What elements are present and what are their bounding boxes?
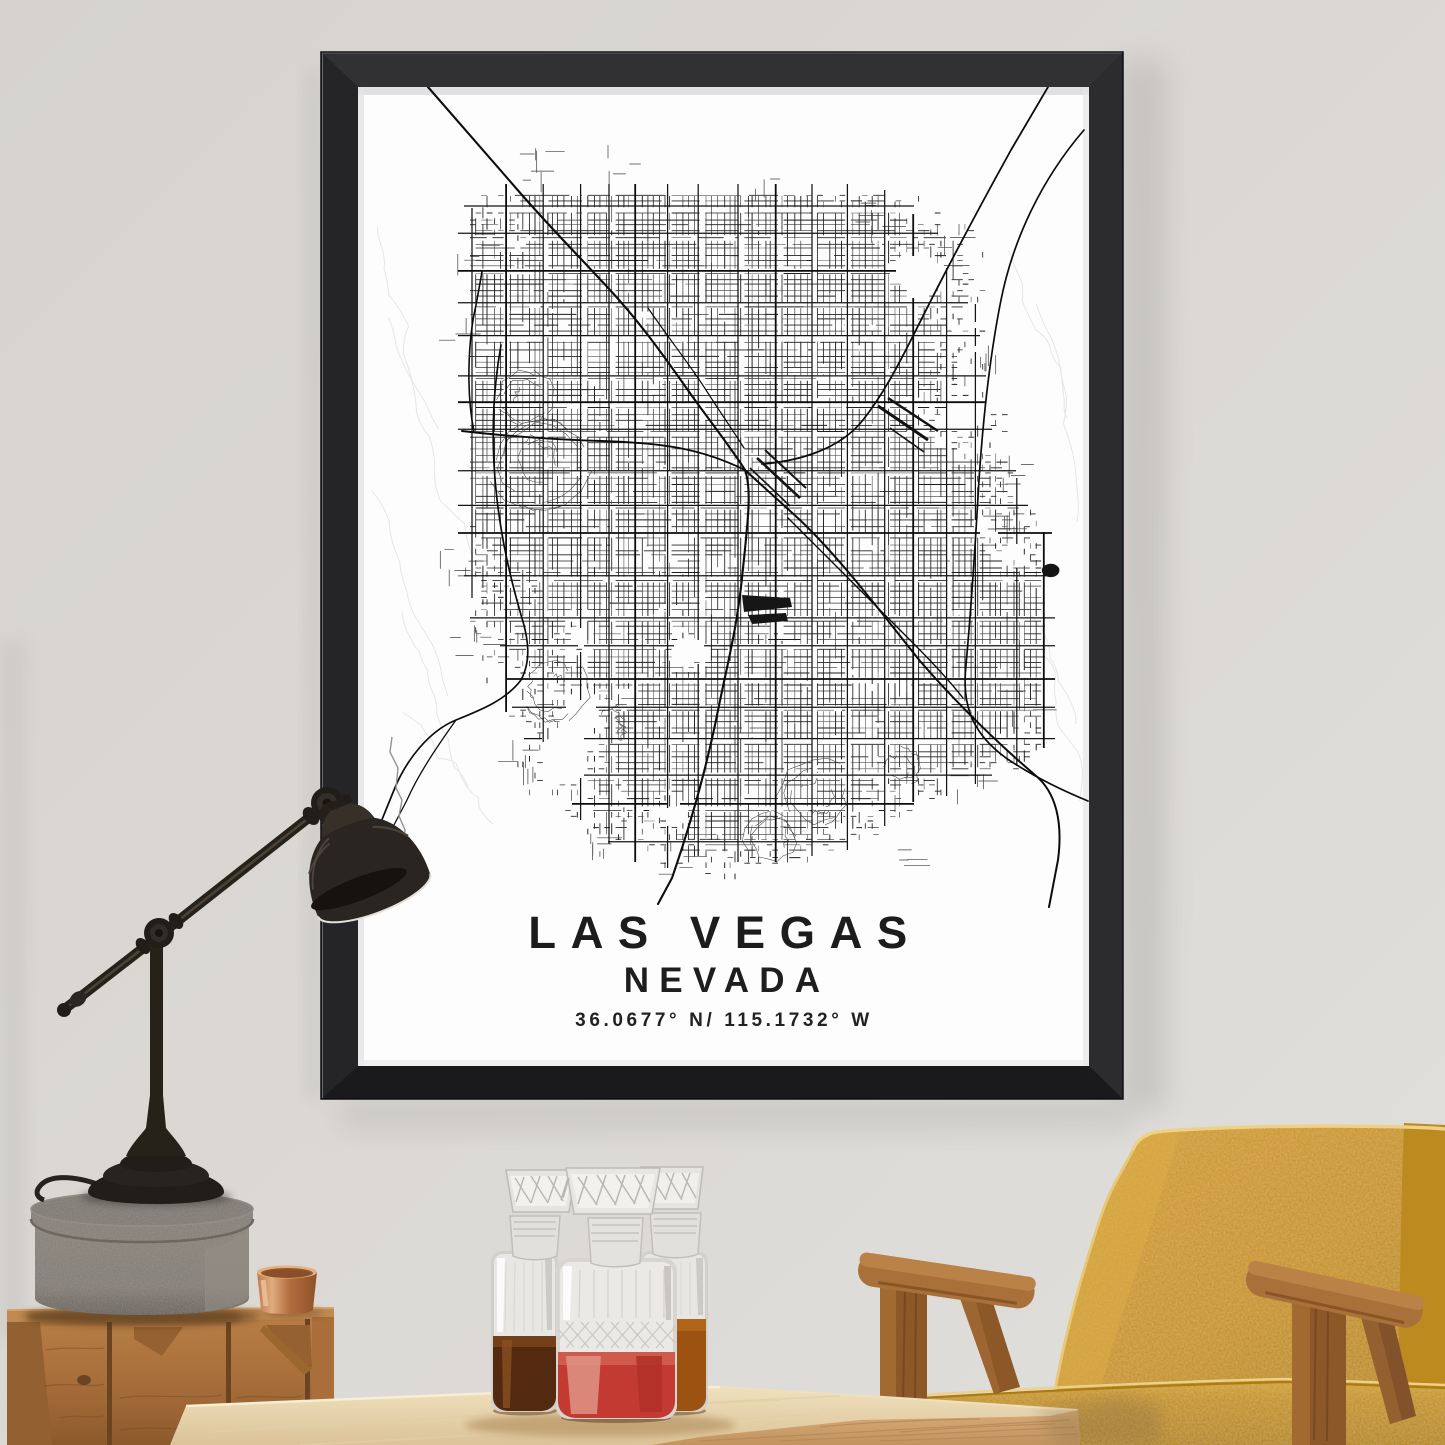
svg-text:36.0677° N/ 115.1732° W: 36.0677° N/ 115.1732° W <box>575 1010 873 1031</box>
svg-text:NEVADA: NEVADA <box>624 961 830 1000</box>
svg-text:LAS VEGAS: LAS VEGAS <box>528 907 921 958</box>
